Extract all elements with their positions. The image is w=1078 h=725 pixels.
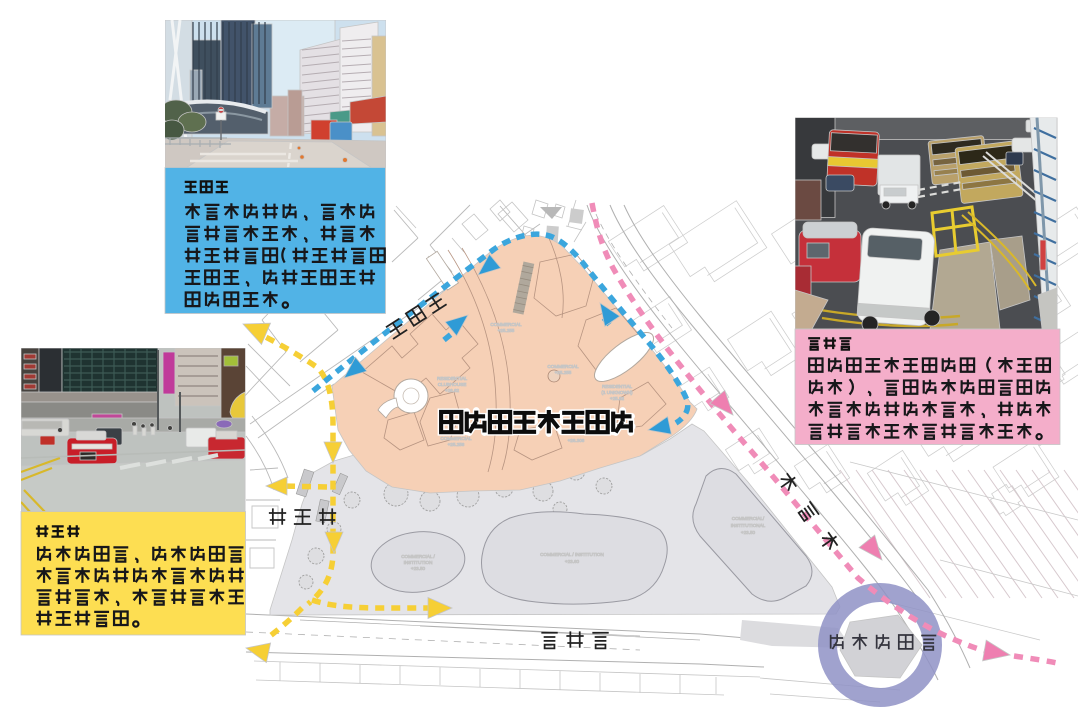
svg-text:(1 UNKNOWN): (1 UNKNOWN) — [601, 390, 633, 395]
svg-text:+25.82: +25.82 — [610, 396, 625, 401]
svg-text:RESIDENTIAL: RESIDENTIAL — [602, 384, 633, 389]
svg-text:+23.60: +23.60 — [565, 559, 580, 564]
svg-text:+25.256: +25.256 — [448, 442, 465, 447]
svg-text:COMMERCIAL: COMMERCIAL — [440, 436, 472, 441]
svg-text:+23.50: +23.50 — [741, 530, 756, 535]
svg-text:COMMERCIAL: COMMERCIAL — [547, 364, 579, 369]
svg-text:INSTITUTION: INSTITUTION — [404, 560, 433, 565]
svg-text:CLUBHOUSE: CLUBHOUSE — [438, 382, 467, 387]
svg-text:+25.255: +25.255 — [555, 370, 572, 375]
svg-text:COMMERCIAL /: COMMERCIAL / — [401, 554, 435, 559]
svg-text:COMMERCIAL: COMMERCIAL — [490, 322, 522, 327]
svg-text:COMMERCIAL / INSTITUTION: COMMERCIAL / INSTITUTION — [540, 552, 604, 557]
svg-text:+23.50: +23.50 — [411, 566, 426, 571]
svg-text:+25.255: +25.255 — [498, 328, 515, 333]
svg-text:+26.306: +26.306 — [568, 438, 585, 443]
svg-text:INSTITUTIONAL: INSTITUTIONAL — [731, 523, 766, 528]
svg-text:+26.62: +26.62 — [445, 388, 460, 393]
svg-text:COMMERCIAL/: COMMERCIAL/ — [732, 516, 765, 521]
svg-text:RESIDENTIAL: RESIDENTIAL — [437, 376, 468, 381]
